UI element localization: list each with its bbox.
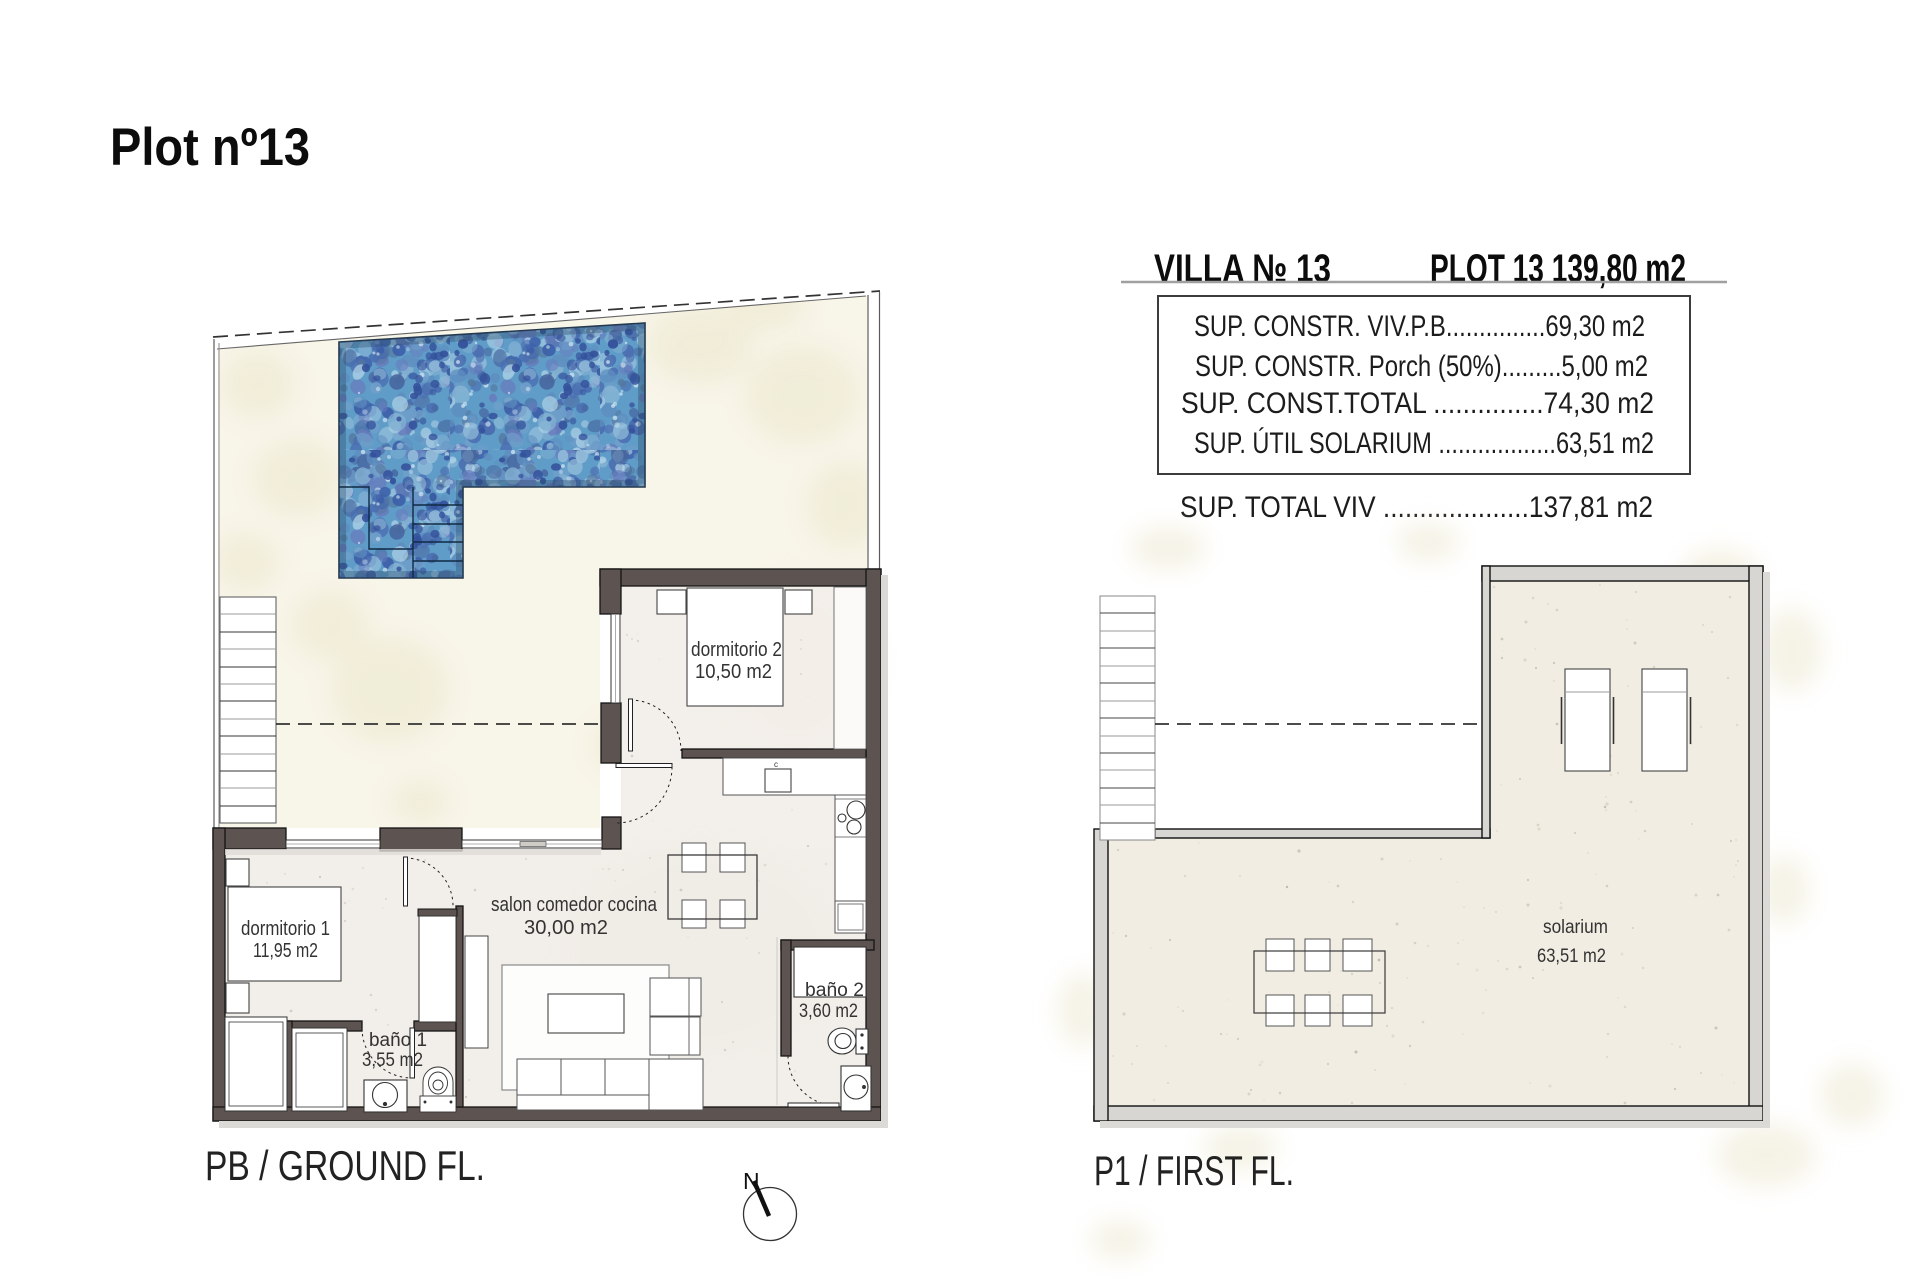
svg-text:P1 / FIRST FL.: P1 / FIRST FL. [1094,1147,1294,1194]
svg-text:solarium: solarium [1543,917,1608,938]
svg-text:N: N [743,1168,760,1194]
svg-text:Plot nº13: Plot nº13 [110,118,310,177]
svg-text:SUP. CONSTR. Porch (50%)......: SUP. CONSTR. Porch (50%).........5,00 m2 [1195,350,1648,383]
svg-text:SUP. CONST.TOTAL .............: SUP. CONST.TOTAL ...............74,30 m2 [1181,387,1654,420]
svg-text:salon comedor cocina: salon comedor cocina [491,894,658,916]
svg-text:VILLA № 13: VILLA № 13 [1154,247,1331,291]
svg-text:SUP. TOTAL VIV ...............: SUP. TOTAL VIV ....................137,8… [1180,491,1653,524]
svg-text:3,60 m2: 3,60 m2 [799,1001,858,1022]
svg-text:c: c [774,760,778,769]
svg-text:3,55 m2: 3,55 m2 [362,1050,423,1071]
svg-text:dormitorio 1: dormitorio 1 [241,918,330,940]
svg-text:baño 1: baño 1 [369,1030,427,1051]
svg-text:10,50 m2: 10,50 m2 [695,661,772,683]
svg-text:SUP. ÚTIL SOLARIUM ...........: SUP. ÚTIL SOLARIUM ..................63,… [1194,427,1654,460]
svg-text:11,95 m2: 11,95 m2 [253,940,318,962]
svg-text:PLOT 13 139,80 m2: PLOT 13 139,80 m2 [1430,247,1686,291]
svg-text:SUP. CONSTR. VIV.P.B..........: SUP. CONSTR. VIV.P.B...............69,30… [1194,310,1645,343]
svg-text:baño 2: baño 2 [805,980,864,1001]
svg-text:30,00 m2: 30,00 m2 [524,917,608,939]
svg-text:PB / GROUND FL.: PB / GROUND FL. [205,1142,485,1189]
svg-text:63,51 m2: 63,51 m2 [1537,946,1606,967]
svg-text:dormitorio 2: dormitorio 2 [691,639,782,661]
